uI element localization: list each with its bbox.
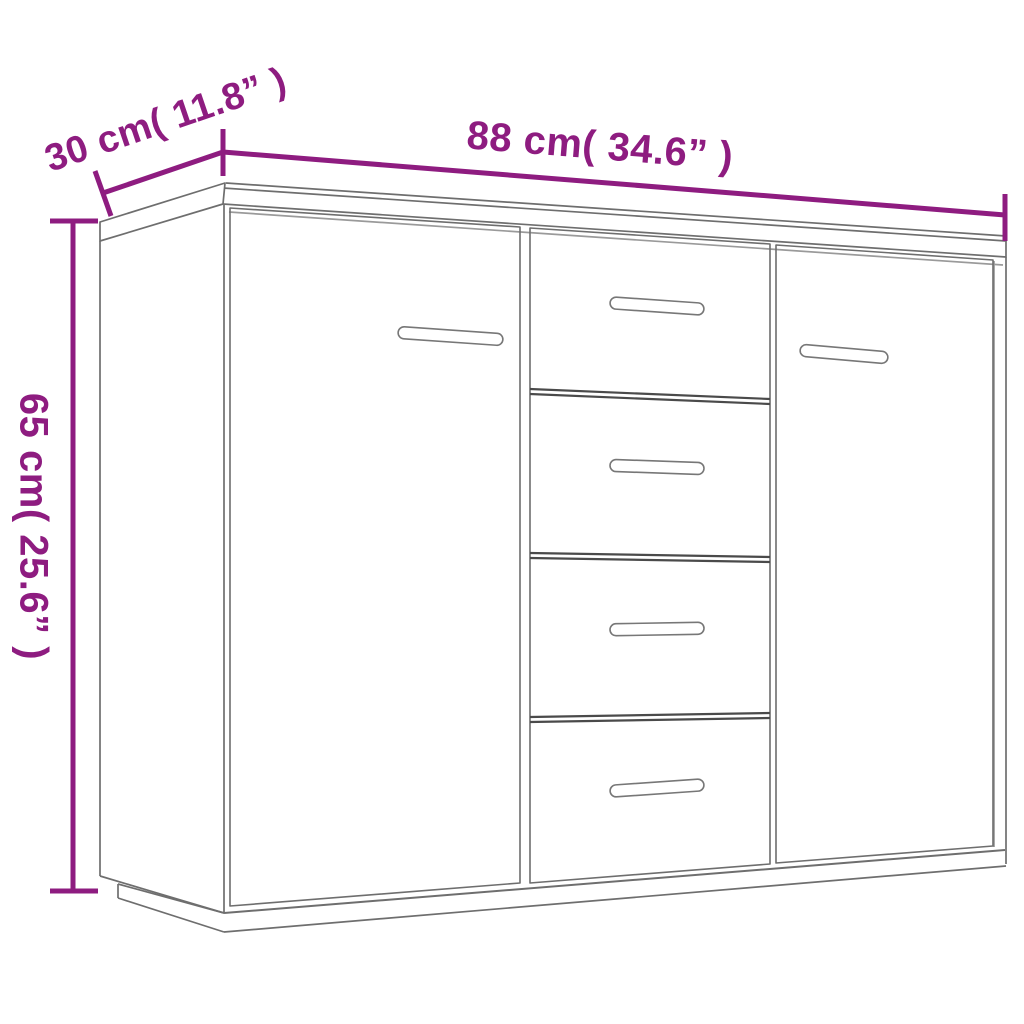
right-door-panel (776, 245, 993, 863)
drawer-2-handle (610, 459, 704, 474)
drawer-divider-1 (530, 389, 770, 404)
height-dimension-label: 65 cm( 25.6” ) (11, 385, 56, 669)
drawer-1-handle (610, 297, 705, 316)
left-door-handle (398, 326, 504, 345)
drawer-4-handle (610, 779, 705, 798)
left-door-panel (230, 208, 520, 906)
drawer-divider-2 (530, 553, 770, 562)
plinth-left-top-edge (118, 884, 224, 913)
drawer-3-handle (610, 622, 704, 636)
handles (398, 297, 889, 798)
plinth-top-edge (224, 850, 1005, 913)
plinth-left-bottom-edge (118, 898, 224, 932)
right-door-handle (800, 344, 889, 364)
drawer-divider-3 (530, 713, 770, 722)
doors-and-drawers (230, 208, 993, 906)
top-panel-left-face (100, 183, 225, 241)
top-panel-front-face (223, 188, 1006, 257)
diagram-canvas: 88 cm( 34.6” ) 30 cm( 11.8” ) 65 cm( 25.… (0, 0, 1024, 1024)
